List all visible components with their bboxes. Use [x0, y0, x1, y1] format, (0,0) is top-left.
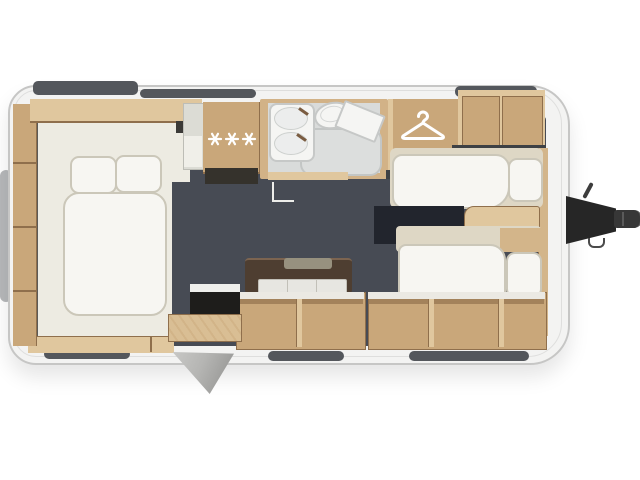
washbasin-bowl-2 — [274, 132, 308, 155]
overhead-cabinet-rear — [30, 99, 202, 123]
bed-pillow-right — [115, 155, 162, 193]
bench-top-bolster — [508, 158, 543, 202]
window-bottom-middle — [268, 351, 344, 361]
storage-unit-2-rim — [368, 292, 545, 299]
storage-divider — [498, 299, 504, 347]
shelf-divider-3 — [13, 290, 36, 292]
window-bottom-front — [409, 351, 529, 361]
table-tray — [284, 258, 332, 269]
storage-unit-1-rim — [236, 292, 364, 299]
hitch-coupler-line — [622, 212, 624, 226]
bed-base-band — [28, 336, 174, 353]
shelf-divider-1 — [13, 162, 36, 164]
hitch-handle-icon — [582, 182, 594, 199]
bed-pillow-left — [70, 156, 117, 194]
window-top-rear — [33, 81, 138, 95]
hitch-coupler — [614, 210, 640, 228]
bench-bottom-wood-corner — [500, 228, 543, 252]
entry-step — [190, 292, 240, 316]
entry-wood-floor — [168, 314, 242, 342]
washroom-door-swing — [272, 182, 294, 202]
kitchen-worktop-side-lower — [184, 136, 202, 167]
storage-divider — [428, 299, 434, 347]
storage-unit-2-shadow — [369, 299, 544, 304]
entry-door-open — [170, 352, 234, 394]
caravan-floorplan — [0, 0, 640, 480]
shelf-divider-2 — [13, 226, 36, 228]
storage-divider — [296, 299, 302, 347]
bed-duvet — [63, 192, 167, 316]
front-cabinet-bay-2 — [502, 96, 543, 146]
rear-shelf-unit — [13, 104, 37, 346]
hitch-hook — [588, 238, 605, 248]
hitch-aframe — [566, 196, 616, 244]
kitchen-counter — [203, 102, 262, 174]
bed-base-divider — [150, 336, 152, 352]
front-cabinet-bay-1 — [462, 96, 500, 146]
bench-top-cushion — [392, 154, 510, 209]
washroom-door-sill — [268, 172, 348, 180]
window-top-kitchen — [140, 89, 256, 98]
kitchen-lower-unit — [205, 168, 258, 184]
